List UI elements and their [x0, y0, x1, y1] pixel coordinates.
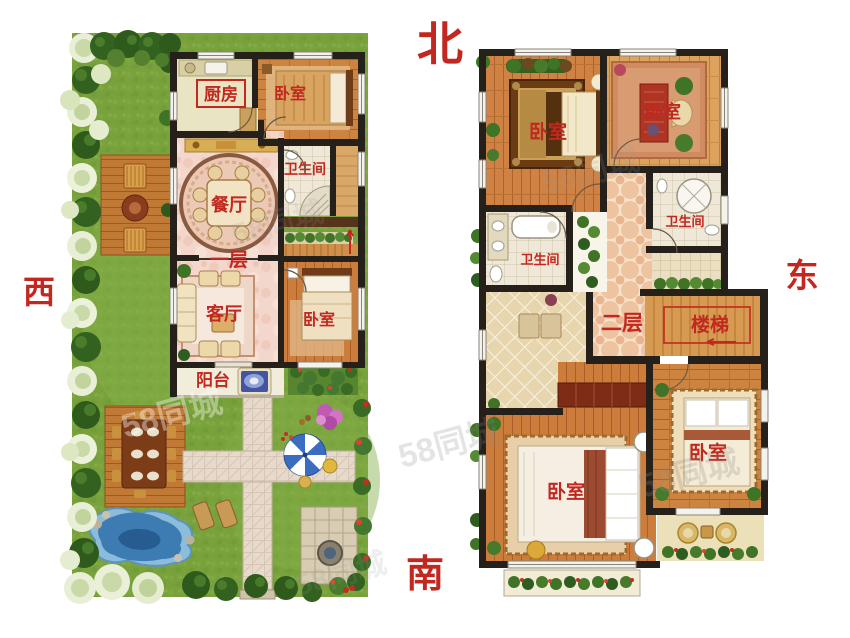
svg-text:一层: 一层 [210, 249, 248, 271]
svg-text:餐厅: 餐厅 [210, 194, 247, 215]
svg-text:东: 东 [786, 257, 819, 294]
svg-text:南: 南 [406, 554, 444, 596]
svg-text:厨房: 厨房 [204, 84, 238, 104]
svg-text:卧室: 卧室 [303, 310, 335, 329]
svg-text:卧室: 卧室 [645, 101, 681, 122]
svg-text:卧室: 卧室 [547, 480, 585, 503]
svg-text:卫生间: 卫生间 [665, 214, 704, 229]
svg-text:西: 西 [23, 274, 55, 310]
svg-text:客厅: 客厅 [206, 303, 242, 324]
svg-text:楼梯: 楼梯 [691, 313, 729, 336]
svg-text:二层: 二层 [601, 312, 643, 335]
svg-text:北: 北 [417, 18, 463, 70]
svg-text:卫生间: 卫生间 [520, 252, 559, 267]
svg-text:卧室: 卧室 [529, 120, 567, 143]
svg-text:卧室: 卧室 [274, 84, 306, 103]
